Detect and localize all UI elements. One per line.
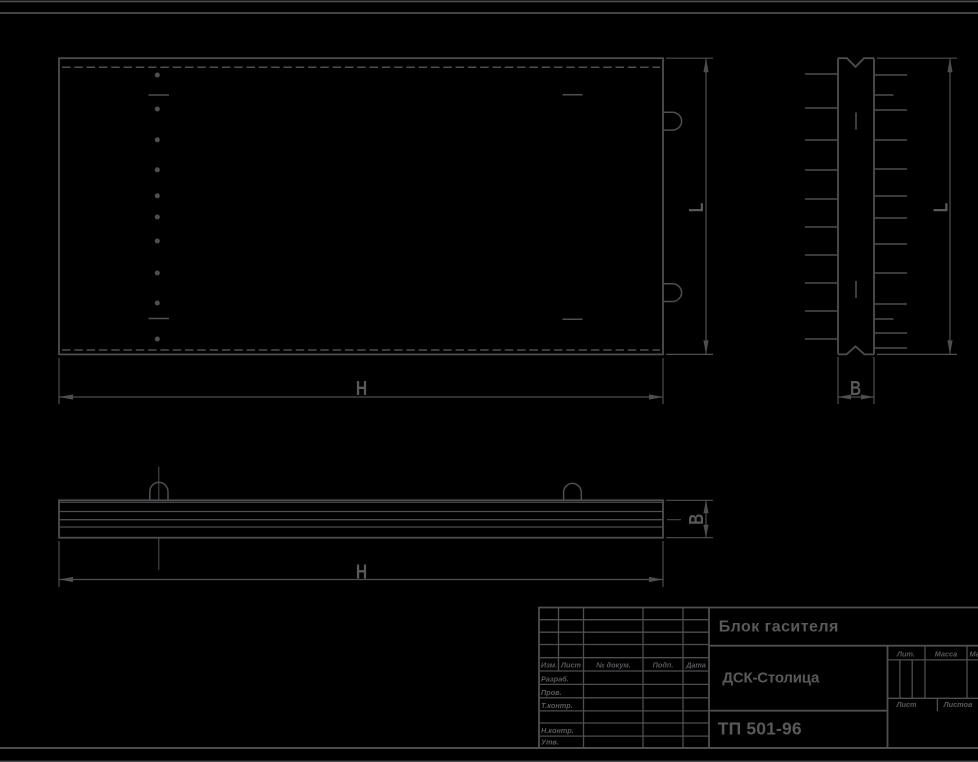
svg-text:L: L	[686, 203, 708, 213]
svg-text:ДСК-Столица: ДСК-Столица	[722, 670, 820, 687]
svg-text:Н.контр.: Н.контр.	[541, 726, 574, 735]
svg-text:Подп.: Подп.	[653, 661, 674, 670]
svg-text:H: H	[356, 378, 367, 400]
svg-text:Т.контр.: Т.контр.	[541, 701, 573, 710]
svg-text:Изм.: Изм.	[541, 661, 557, 670]
svg-text:№ докум.: № докум.	[596, 661, 631, 670]
svg-text:Листов: Листов	[943, 700, 973, 709]
svg-text:B: B	[686, 514, 708, 525]
svg-text:Лист: Лист	[560, 661, 582, 670]
svg-text:Блок гасителя: Блок гасителя	[719, 619, 839, 636]
svg-text:Лист: Лист	[895, 700, 917, 709]
svg-text:Утв.: Утв.	[541, 738, 559, 747]
svg-text:Масса: Масса	[935, 650, 957, 659]
svg-text:Масштаб: Масштаб	[970, 650, 978, 659]
svg-text:Пров.: Пров.	[541, 688, 562, 697]
svg-text:Лит.: Лит.	[896, 650, 915, 659]
svg-text:L: L	[930, 203, 952, 213]
svg-text:Дата: Дата	[685, 661, 706, 670]
svg-text:B: B	[850, 378, 861, 400]
svg-text:H: H	[356, 561, 367, 583]
svg-text:ТП 501-96: ТП 501-96	[718, 719, 802, 739]
svg-text:Разраб.: Разраб.	[541, 675, 569, 684]
